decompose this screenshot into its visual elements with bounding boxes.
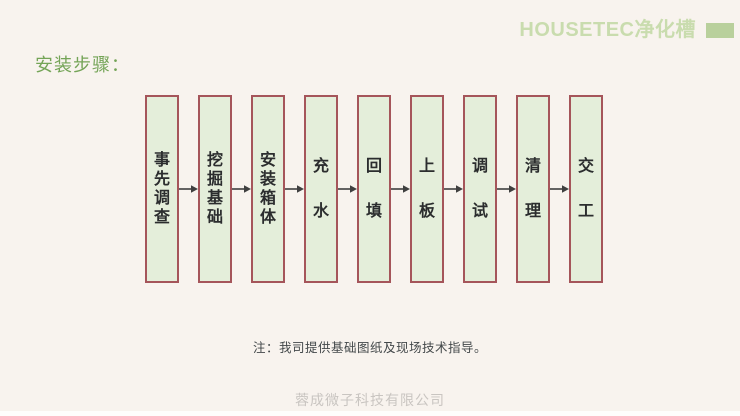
bottom-edge-strip	[0, 411, 740, 416]
flow-step-label: 回填	[366, 144, 382, 234]
brand-accent-rect	[706, 23, 734, 38]
flow-step-label: 交工	[578, 144, 594, 234]
installation-flowchart: 事先调查 挖掘基础 安装箱体 充水 回填 上板	[145, 95, 603, 283]
arrow-right-icon	[444, 183, 463, 195]
flow-step-label: 清理	[525, 144, 541, 234]
arrow-right-icon	[550, 183, 569, 195]
brand-header: HOUSETEC净化槽	[519, 20, 734, 40]
page-title: 安装步骤：	[35, 51, 130, 77]
arrow-right-icon	[338, 183, 357, 195]
slide: HOUSETEC净化槽 安装步骤： 事先调查 挖掘基础 安装箱体 充水 回	[0, 0, 740, 416]
flow-step-label: 充水	[313, 144, 329, 234]
footer-company-name: 蓉成微子科技有限公司	[0, 390, 740, 410]
flow-step-label: 事先调查	[154, 151, 170, 227]
flow-step-box: 调试	[463, 95, 497, 283]
arrow-right-icon	[232, 183, 251, 195]
brand-logo-text: HOUSETEC净化槽	[519, 20, 696, 40]
arrow-right-icon	[285, 183, 304, 195]
flow-step-box: 回填	[357, 95, 391, 283]
arrow-right-icon	[391, 183, 410, 195]
flow-step-box: 交工	[569, 95, 603, 283]
flow-step-label: 挖掘基础	[207, 151, 223, 227]
flow-step-box: 安装箱体	[251, 95, 285, 283]
flow-step-label: 安装箱体	[260, 151, 276, 227]
note-text: 注：我司提供基础图纸及现场技术指导。	[0, 337, 740, 356]
flow-step-label: 调试	[472, 144, 488, 234]
flow-step-box: 清理	[516, 95, 550, 283]
arrow-right-icon	[497, 183, 516, 195]
arrow-right-icon	[179, 183, 198, 195]
flow-step-box: 充水	[304, 95, 338, 283]
flow-step-box: 事先调查	[145, 95, 179, 283]
flow-step-box: 上板	[410, 95, 444, 283]
flow-step-label: 上板	[419, 144, 435, 234]
flow-step-box: 挖掘基础	[198, 95, 232, 283]
